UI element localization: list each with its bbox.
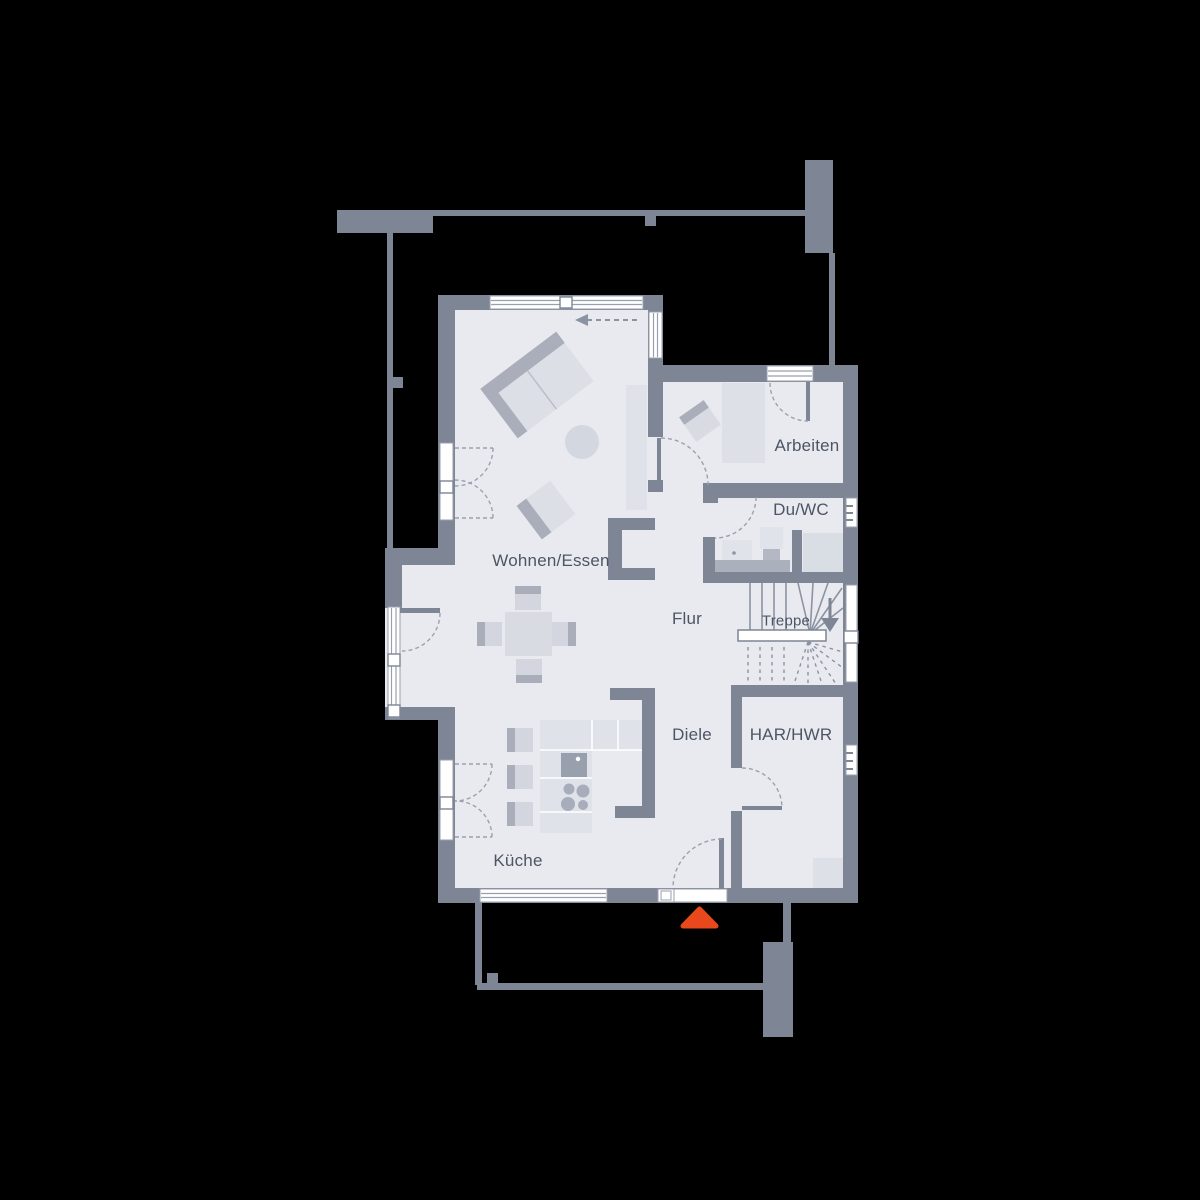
kitchen-sink (561, 753, 587, 777)
floor-plan-drawing (0, 0, 1200, 1200)
room-label-du-wc: Du/WC (773, 500, 829, 520)
living-room-side-window (649, 312, 662, 358)
bath-window (846, 498, 857, 527)
vanity-counter (715, 560, 790, 572)
entrance-arrow-icon (683, 909, 716, 926)
room-label-wohnen-essen: Wohnen/Essen (492, 551, 609, 571)
utility-window (846, 745, 857, 775)
room-label-diele: Diele (672, 725, 712, 745)
stair-landing-rail (738, 630, 826, 641)
living-room-top-window (490, 296, 643, 309)
shower (803, 533, 843, 572)
room-label-arbeiten: Arbeiten (775, 436, 840, 456)
kitchen-window (480, 889, 607, 902)
terrace-outline-bottom (475, 903, 793, 1037)
round-rug (565, 425, 599, 459)
room-label-kueche: Küche (493, 851, 542, 871)
sideboard (626, 385, 647, 510)
bath-sink (722, 540, 752, 560)
room-label-har-hwr: HAR/HWR (750, 725, 833, 745)
room-label-treppe: Treppe (762, 613, 810, 630)
toilet (760, 527, 783, 549)
kitchen-stools (507, 728, 533, 826)
stairs-window (844, 585, 858, 682)
desk (722, 383, 765, 463)
floor-plan-canvas: Wohnen/Essen Arbeiten Du/WC Treppe Flur … (0, 0, 1200, 1200)
washing-machine (813, 858, 843, 890)
room-label-flur: Flur (672, 609, 702, 629)
